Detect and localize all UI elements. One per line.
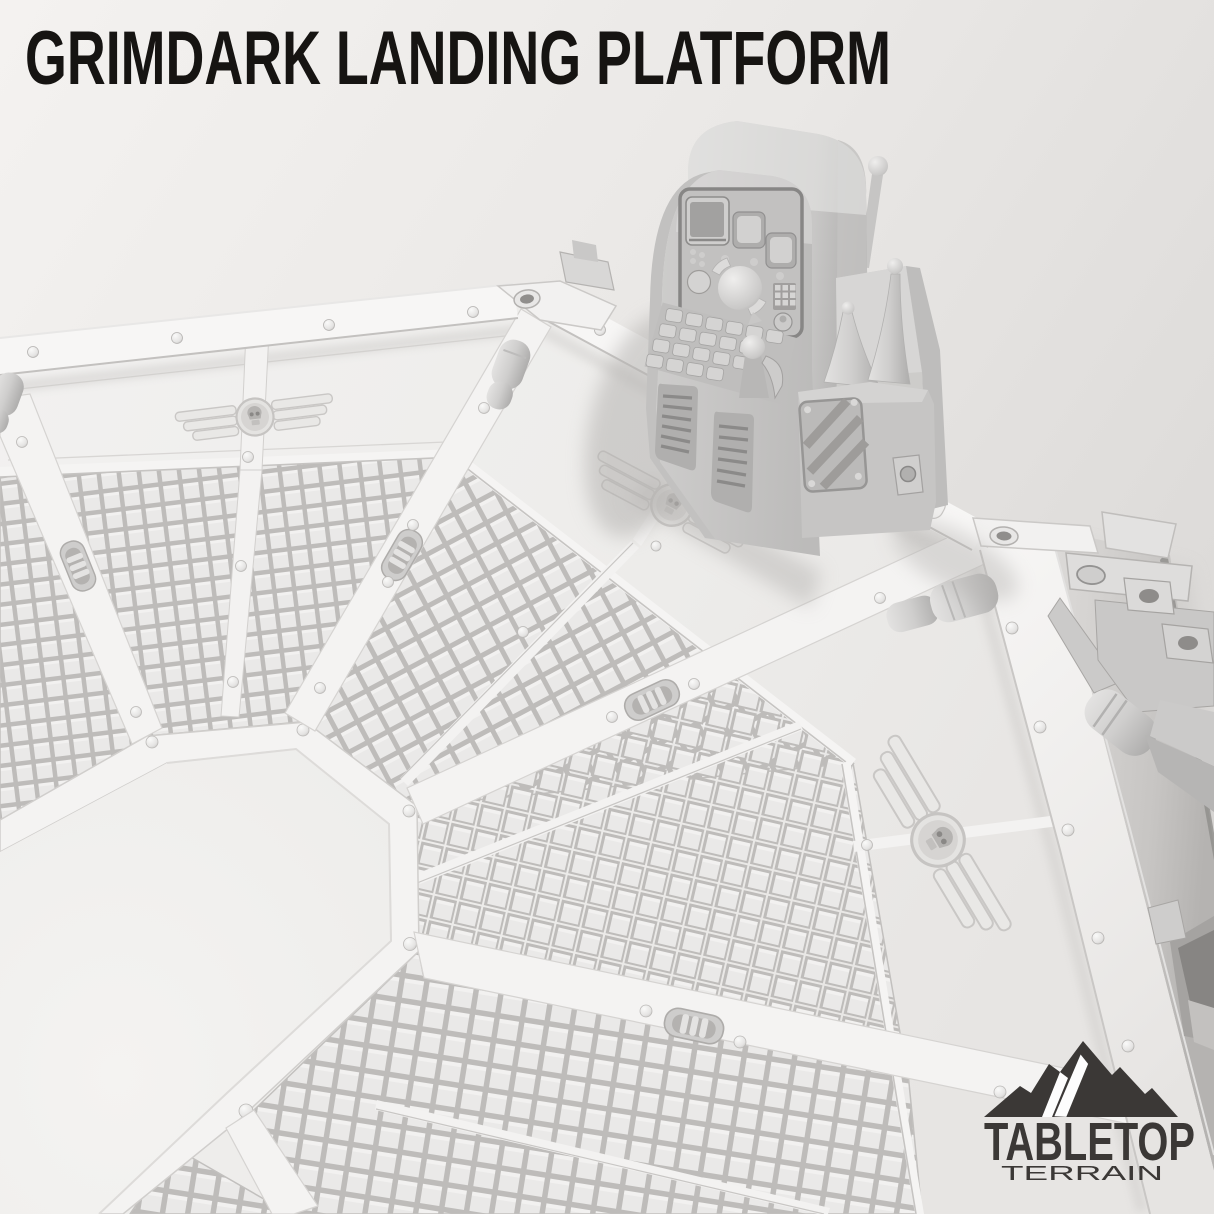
svg-text:GRIMDARK LANDING PLATFORM: GRIMDARK LANDING PLATFORM [25, 16, 891, 101]
svg-text:TERRAIN: TERRAIN [1001, 1163, 1163, 1185]
